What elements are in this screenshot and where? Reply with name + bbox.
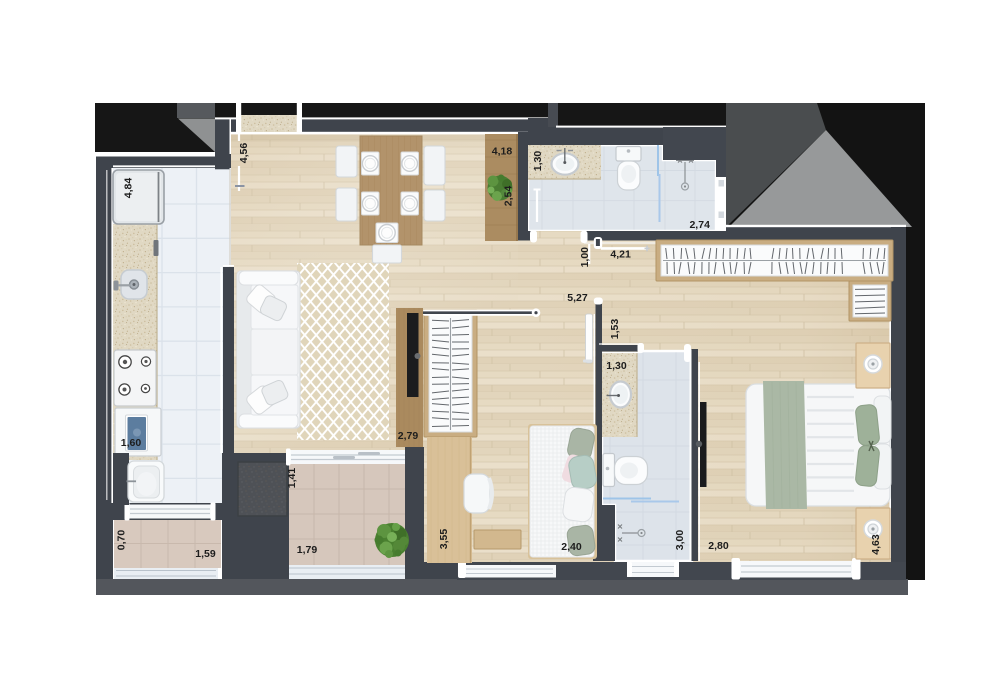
svg-text:1,30: 1,30 [532,151,544,172]
svg-text:4,63: 4,63 [870,534,882,555]
svg-text:2,80: 2,80 [708,540,729,552]
svg-text:4,18: 4,18 [492,146,513,158]
svg-text:3,00: 3,00 [674,530,686,551]
svg-text:1,41: 1,41 [286,468,298,489]
svg-text:2,74: 2,74 [689,219,710,231]
svg-text:1,53: 1,53 [609,319,621,340]
svg-text:2,40: 2,40 [561,541,582,553]
svg-text:3,55: 3,55 [438,529,450,550]
svg-text:2,54: 2,54 [502,186,514,207]
svg-text:4,21: 4,21 [610,248,631,260]
svg-text:4,56: 4,56 [238,143,250,164]
svg-text:1,00: 1,00 [579,247,591,268]
svg-text:1,60: 1,60 [121,437,142,449]
svg-text:1,59: 1,59 [195,548,216,560]
svg-text:4,84: 4,84 [123,178,135,199]
svg-text:2,79: 2,79 [398,430,419,442]
svg-text:1,79: 1,79 [297,544,318,556]
svg-text:1,30: 1,30 [606,360,627,372]
svg-text:0,70: 0,70 [115,530,127,551]
svg-text:5,27: 5,27 [567,292,588,304]
